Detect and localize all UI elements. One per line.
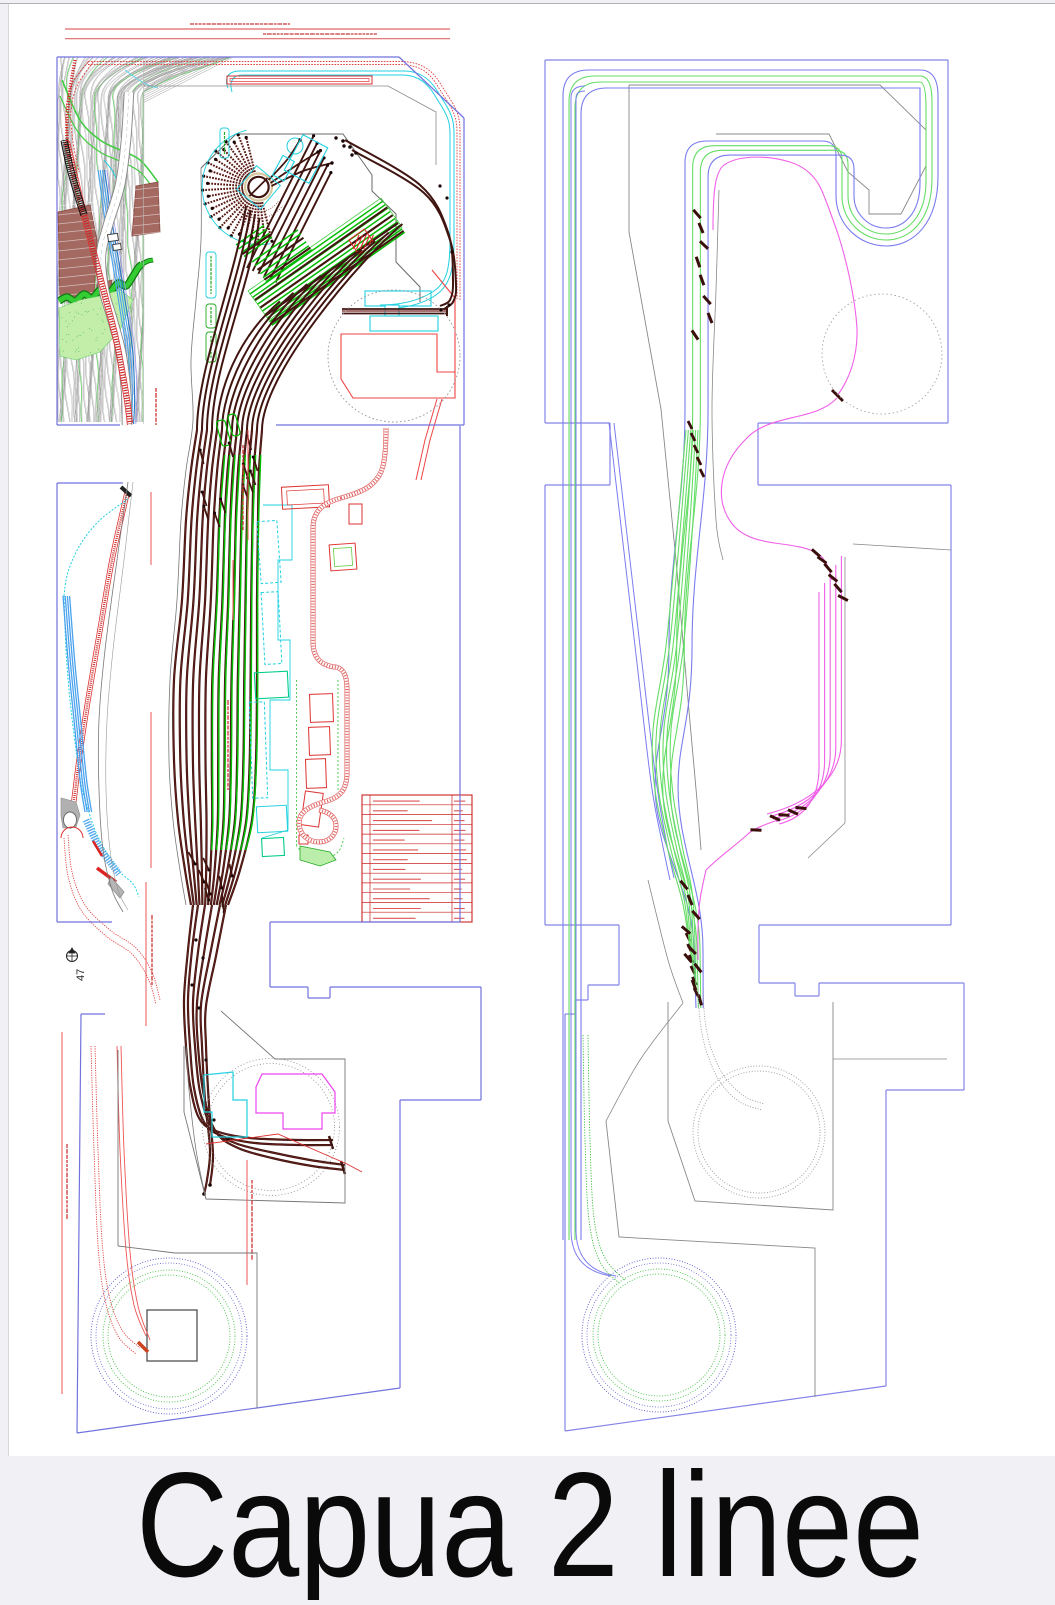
svg-text:Capua 2 linee: Capua 2 linee	[136, 1441, 924, 1600]
svg-text:47: 47	[75, 969, 87, 981]
